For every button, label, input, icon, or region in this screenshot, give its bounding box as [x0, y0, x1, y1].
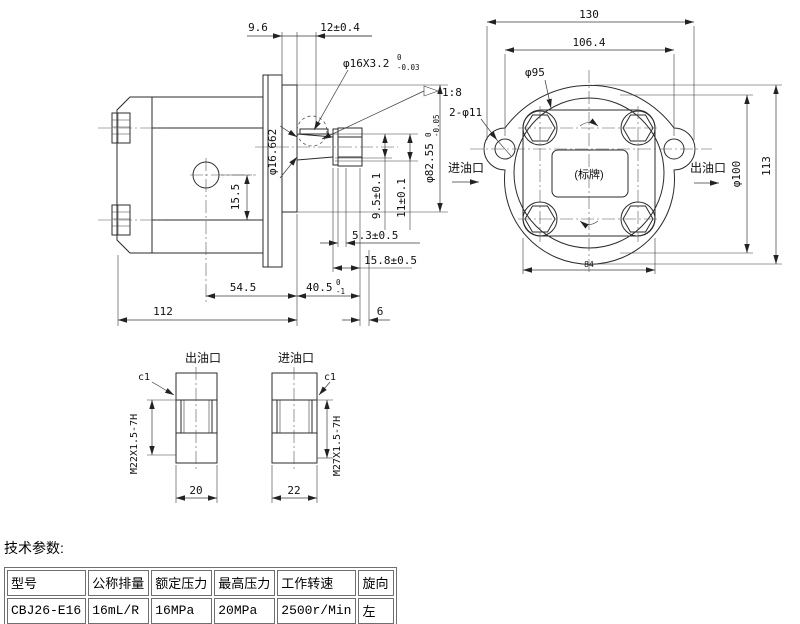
technical-drawing: 9.6 12±0.4 φ16X3.2 0 -0.03 1:8 φ16.662 1…: [0, 0, 800, 536]
dim-taper-gauge-dia: φ16.662: [266, 129, 279, 175]
dim-113: 113: [760, 156, 773, 176]
value-max-pressure: 20MPa: [214, 598, 275, 624]
nameplate-label: (标牌): [574, 167, 603, 181]
specs-header-row: 型号 公称排量 额定压力 最高压力 工作转速 旋向: [7, 570, 394, 596]
side-view-dimensions: 9.6 12±0.4 φ16X3.2 0 -0.03 1:8 φ16.662 1…: [118, 21, 462, 326]
value-rated-pressure: 16MPa: [151, 598, 212, 624]
value-speed: 2500r/Min: [277, 598, 356, 624]
col-max-pressure: 最高压力: [214, 570, 275, 596]
dim-5-3: 5.3±0.5: [352, 229, 398, 242]
inlet-port-label: 进油口: [448, 161, 484, 175]
chamfer-label-outlet: c1: [138, 372, 150, 383]
dim-shaft-thread-tol-upper: 0: [397, 53, 402, 62]
taper-symbol: [424, 86, 438, 96]
dim-taper-ratio: 1:8: [442, 86, 462, 99]
specs-table: 型号 公称排量 额定压力 最高压力 工作转速 旋向 CBJ26-E16 16mL…: [4, 567, 397, 624]
dim-shaft-thread-tol-lower: -0.03: [397, 63, 420, 72]
dim-mount-holes: 2-φ11: [449, 106, 482, 119]
port-sections: 出油口 c1 M22X1.5-7H 20 进油口 c1: [129, 351, 343, 503]
dim-9-6: 9.6: [248, 21, 268, 34]
dim-pilot-dia-tol-lower: -0.05: [432, 114, 441, 137]
dim-outlet-bore: 20: [189, 484, 202, 497]
front-view-dimensions: 130 106.4 φ95 2-φ11 进油口 出油口 (标牌) φ100 11…: [448, 8, 782, 274]
value-model: CBJ26-E16: [7, 598, 86, 624]
dim-inlet-bore: 22: [287, 484, 300, 497]
inlet-thread-spec: M27X1.5-7H: [332, 416, 343, 476]
specs-section: 技术参数: 型号 公称排量 额定压力 最高压力 工作转速 旋向 CBJ26-E1…: [4, 538, 397, 624]
dim-15-5: 15.5: [229, 184, 242, 211]
dim-12: 12±0.4: [320, 21, 360, 34]
dim-112: 112: [153, 305, 173, 318]
chamfer-label-inlet: c1: [324, 372, 336, 383]
specs-title: 技术参数:: [4, 538, 397, 558]
section-inlet-label: 进油口: [278, 351, 314, 365]
value-rotation: 左: [358, 598, 393, 624]
outlet-thread-spec: M22X1.5-7H: [129, 414, 140, 474]
col-speed: 工作转速: [277, 570, 356, 596]
dim-100-dia: φ100: [730, 161, 743, 188]
col-rated-pressure: 额定压力: [151, 570, 212, 596]
col-displacement: 公称排量: [88, 570, 149, 596]
dim-40-5-tol-upper: 0: [336, 278, 341, 287]
dim-130: 130: [579, 8, 599, 21]
col-model: 型号: [7, 570, 86, 596]
rear-cover-outline: [117, 97, 152, 253]
dim-6: 6: [377, 305, 384, 318]
specs-value-row: CBJ26-E16 16mL/R 16MPa 20MPa 2500r/Min 左: [7, 598, 394, 624]
dim-84: 84: [584, 260, 594, 269]
pump-drawing-page: 9.6 12±0.4 φ16X3.2 0 -0.03 1:8 φ16.662 1…: [0, 0, 800, 624]
dim-boss-dia: φ95: [525, 66, 545, 79]
col-rotation: 旋向: [358, 570, 393, 596]
dim-40-5-tol-lower: -1: [336, 287, 345, 296]
dim-shaft-thread: φ16X3.2: [343, 57, 389, 70]
dim-15-8: 15.8±0.5: [364, 254, 417, 267]
dim-40-5: 40.5: [306, 281, 333, 294]
value-displacement: 16mL/R: [88, 598, 149, 624]
dim-54-5: 54.5: [230, 281, 257, 294]
dim-106-4: 106.4: [572, 36, 605, 49]
pilot-boss: [282, 85, 297, 212]
outlet-port-label: 出油口: [690, 161, 726, 175]
dim-pilot-dia: φ82.55: [423, 143, 436, 183]
section-outlet-label: 出油口: [185, 351, 221, 365]
detail-callout-circle: [297, 116, 327, 146]
